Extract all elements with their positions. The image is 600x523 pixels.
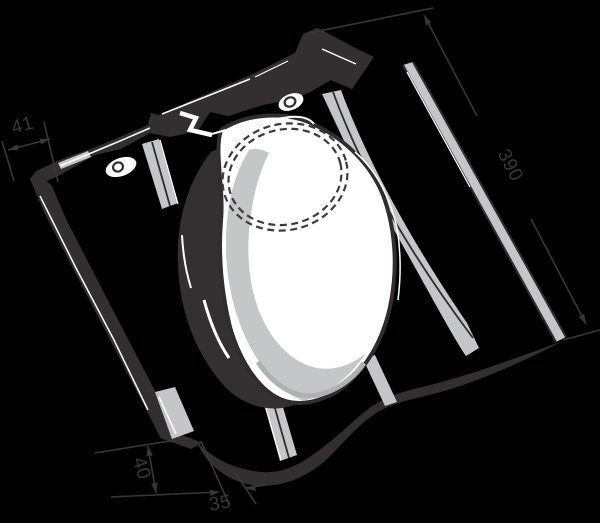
roof-tile-vent-drawing: 41 390 40 35 (0, 0, 600, 523)
dimension-label-35: 35 (208, 491, 233, 515)
technical-drawing-stage: 41 390 40 35 (0, 0, 600, 523)
